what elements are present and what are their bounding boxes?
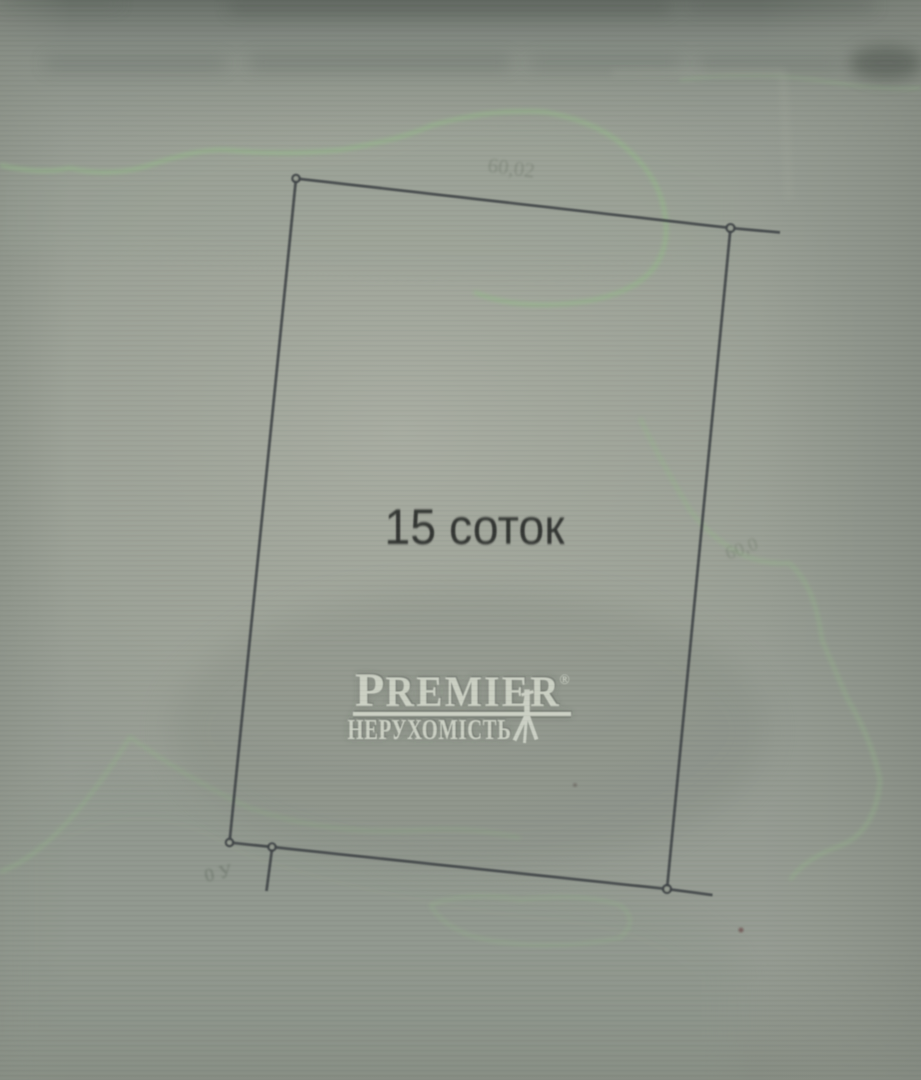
svg-text:НЕРУХОМІСТЬ: НЕРУХОМІСТЬ <box>348 714 512 746</box>
svg-text:P: P <box>355 664 384 717</box>
svg-text:15 соток: 15 соток <box>384 499 565 555</box>
svg-text:®: ® <box>560 672 570 687</box>
svg-text:REMIER: REMIER <box>386 668 562 716</box>
